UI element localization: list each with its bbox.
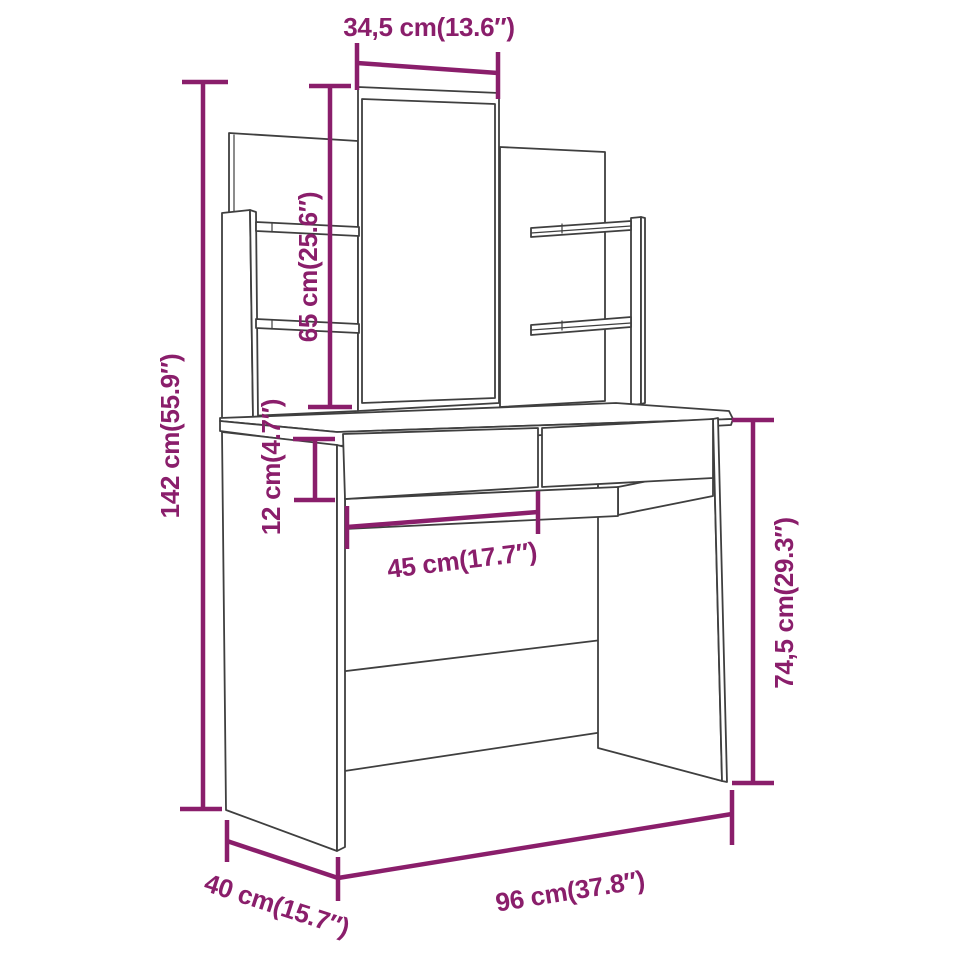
left-shelf-post bbox=[222, 210, 253, 421]
right-shelf-post bbox=[631, 217, 641, 405]
bottom-back-panel bbox=[338, 639, 610, 772]
dimension-label-depth: 40 cm(15.7″) bbox=[201, 867, 353, 942]
mirror bbox=[358, 87, 499, 411]
dimension-label-mirror-width: 34,5 cm(13.6″) bbox=[343, 12, 515, 42]
dimension-label-total-height: 142 cm(55.9″) bbox=[155, 354, 185, 519]
diagram-svg: 34,5 cm(13.6″) 142 cm(55.9″) 65 cm(25.6″… bbox=[0, 0, 955, 955]
dim-table-height: 74,5 cm(29.3″) bbox=[732, 420, 799, 783]
dimension-label-mirror-height: 65 cm(25.6″) bbox=[293, 192, 323, 343]
left-drawer bbox=[343, 428, 538, 499]
dimension-label-drawer-height: 12 cm(4.7″) bbox=[256, 399, 286, 535]
dim-depth-line bbox=[227, 841, 338, 878]
dim-mirror-width: 34,5 cm(13.6″) bbox=[343, 12, 515, 99]
dim-total-width-line bbox=[338, 814, 732, 878]
dimension-label-table-height: 74,5 cm(29.3″) bbox=[769, 517, 799, 689]
right-shelf-post-edge bbox=[641, 217, 645, 404]
right-back-panel bbox=[500, 147, 605, 407]
dimension-diagram: 34,5 cm(13.6″) 142 cm(55.9″) 65 cm(25.6″… bbox=[0, 0, 955, 955]
dim-total-width: 96 cm(37.8″) bbox=[338, 790, 732, 918]
dimension-label-total-width: 96 cm(37.8″) bbox=[493, 864, 646, 917]
dim-total-height: 142 cm(55.9″) bbox=[155, 82, 228, 809]
dim-mirror-width-line bbox=[357, 63, 498, 73]
right-drawer bbox=[542, 419, 713, 487]
dimension-label-under-drawer-width: 45 cm(17.7″) bbox=[385, 536, 538, 584]
left-side-panel-edge bbox=[337, 445, 345, 851]
